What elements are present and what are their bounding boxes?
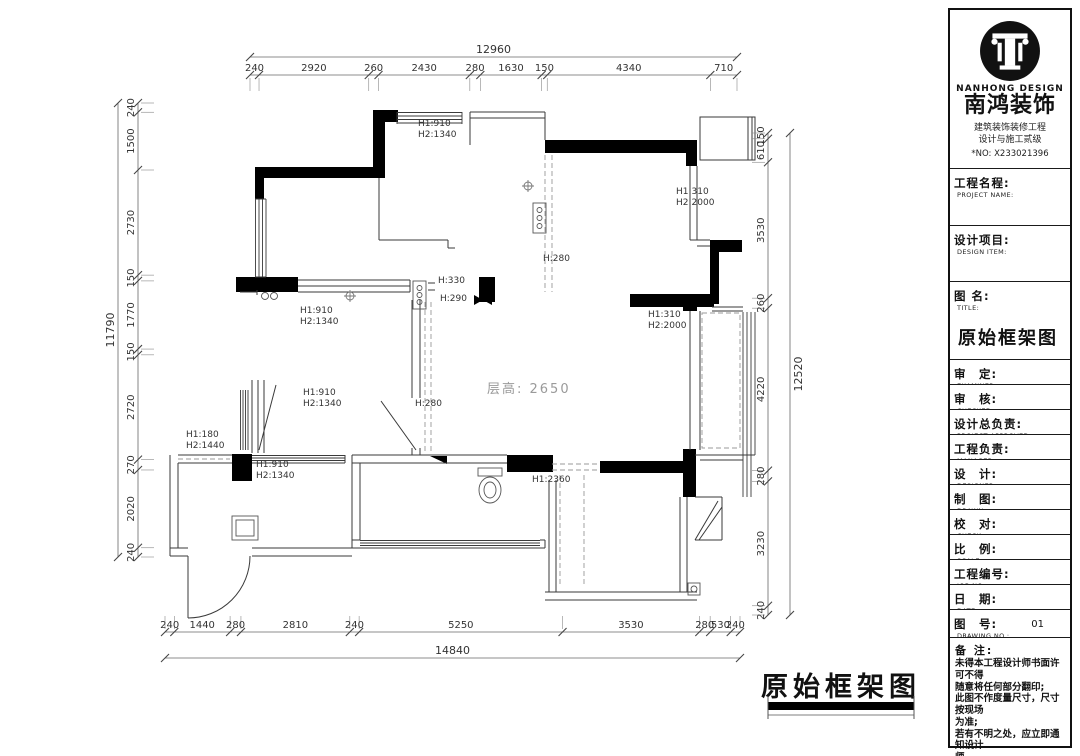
field-project-approved: 设计总负责:PROJECT APPROVED: xyxy=(950,409,1070,434)
dim-label: 2810 xyxy=(283,620,308,631)
field-checked: 审 核:CHECKED: xyxy=(950,384,1070,409)
dim-label: 270 xyxy=(126,455,137,474)
field-designer: 设 计:DESIGNER: xyxy=(950,459,1070,484)
dim-label: 2020 xyxy=(126,496,137,521)
survey-point-icon xyxy=(522,180,534,192)
dim-label: 260 xyxy=(364,63,383,74)
dim-label: 1630 xyxy=(498,63,523,74)
opening-height-label: H:280 xyxy=(415,399,442,409)
dim-label: 610 xyxy=(756,141,767,160)
toilet-icon xyxy=(478,468,502,503)
notes-line: 若有不明之处，应立即通知设计 xyxy=(955,729,1065,753)
floor-drain-icon xyxy=(688,583,700,595)
field-value: 原始框架图 xyxy=(958,324,1066,350)
opening-height-label: H:280 xyxy=(543,254,570,264)
title-block-fields: 工程名程:PROJECT NAME:设计项目:DESIGN ITEM:图 名:T… xyxy=(950,168,1070,637)
field-design-item: 设计项目:DESIGN ITEM: xyxy=(950,225,1070,281)
field-drawn: 制 图:DRAWN: xyxy=(950,484,1070,509)
dim-label: 710 xyxy=(714,63,733,74)
dim-label: 280 xyxy=(226,620,245,631)
title-underline-bar xyxy=(768,702,914,710)
electric-panel-icon xyxy=(413,281,426,309)
opening-height-label: H1:2360 xyxy=(532,475,571,485)
company-logo-section: NANHONG DESIGN 南鸿装饰 建筑装饰装修工程 设计与施工贰级 *NO… xyxy=(950,10,1070,168)
dim-total-label: 12960 xyxy=(476,43,511,56)
notes-line: 随意将任何部分翻印; xyxy=(955,682,1065,694)
dim-label: 260 xyxy=(756,294,767,313)
field-scale: 比 例:SCALE: xyxy=(950,534,1070,559)
company-logo-icon xyxy=(979,20,1041,82)
washing-machine-icon xyxy=(232,516,258,540)
dim-total-label: 12520 xyxy=(792,357,805,392)
field-manager: 工程负责:MANAGER: xyxy=(950,434,1070,459)
notes-label: 备 注: xyxy=(955,642,1065,658)
field-project-name: 工程名程:PROJECT NAME: xyxy=(950,168,1070,225)
dim-label: 5250 xyxy=(448,620,473,631)
doors xyxy=(188,401,416,618)
brand-name-cn: 南鸿装饰 xyxy=(950,94,1070,118)
floor-height-label: 层高: 2650 xyxy=(487,381,571,397)
dim-label: 240 xyxy=(126,543,137,562)
dim-label: 1500 xyxy=(126,128,137,153)
walls-solid xyxy=(232,110,742,497)
dim-label: 150 xyxy=(126,268,137,287)
dim-label: 1770 xyxy=(126,302,137,327)
opening-height-label: H1:310H2:2000 xyxy=(648,310,687,331)
dim-label: 2920 xyxy=(301,63,326,74)
field-check: 校 对:CHECK: xyxy=(950,509,1070,534)
dim-label: 240 xyxy=(756,601,767,620)
notes-lines: 未得本工程设计师书面许可不得随意将任何部分翻印;此图不作度量尺寸，尺寸按现场为准… xyxy=(955,658,1065,756)
opening-height-label: H:290 xyxy=(440,294,467,304)
dim-chain-right: 15061035302604220280323024012520 xyxy=(752,126,805,620)
opening-height-label: H1:180H2:1440 xyxy=(186,430,225,451)
dim-label: 2730 xyxy=(126,210,137,235)
dim-label: 1440 xyxy=(189,620,214,631)
notes-line: 为准; xyxy=(955,717,1065,729)
dim-label: 3230 xyxy=(756,531,767,556)
dim-chain-left: 2401500273015017701502720270202024011790 xyxy=(104,98,154,562)
dim-label: 240 xyxy=(245,63,264,74)
stove-burners-icon xyxy=(262,293,278,300)
notes-section: 备 注: 未得本工程设计师书面许可不得随意将任何部分翻印;此图不作度量尺寸，尺寸… xyxy=(950,637,1070,756)
dim-label: 150 xyxy=(126,342,137,361)
bedroom-door-leaf xyxy=(381,401,416,450)
notes-line: 未得本工程设计师书面许可不得 xyxy=(955,658,1065,682)
dim-label: 3530 xyxy=(618,620,643,631)
opening-height-label: H1:310H2:2000 xyxy=(676,187,715,208)
dim-label: 150 xyxy=(535,63,554,74)
dim-label: 2430 xyxy=(411,63,436,74)
certification-number: *NO: X233021396 xyxy=(950,149,1070,159)
dim-total-label: 11790 xyxy=(104,313,117,348)
entry-door-swing xyxy=(188,556,250,618)
drawing-title-group: 原始框架图 xyxy=(761,671,921,719)
dim-label: 4220 xyxy=(756,377,767,402)
dim-label: 2720 xyxy=(126,394,137,419)
opening-height-label: H1:910H2:1340 xyxy=(418,119,457,140)
field-title: 图 名:TITLE:原始框架图 xyxy=(950,281,1070,359)
field-job-no: 工程编号:JOB NO.: xyxy=(950,559,1070,584)
field-value: 01 xyxy=(1031,619,1044,630)
drawing-title: 原始框架图 xyxy=(761,671,921,703)
dim-label: 280 xyxy=(466,63,485,74)
electric-panel-icon xyxy=(533,203,546,233)
title-block: NANHONG DESIGN 南鸿装饰 建筑装饰装修工程 设计与施工贰级 *NO… xyxy=(948,8,1072,748)
certification-text: 建筑装饰装修工程 设计与施工贰级 xyxy=(950,122,1070,146)
dim-label: 240 xyxy=(126,98,137,117)
dim-chain-bottom: 240144028028102405250353028053024014840 xyxy=(160,616,745,662)
dim-label: 240 xyxy=(345,620,364,631)
dim-chain-top: 240292026024302801630150434071012960 xyxy=(245,43,741,91)
notes-line: 此图不作度量尺寸，尺寸按现场 xyxy=(955,693,1065,717)
field-date: 日 期:DATE: xyxy=(950,584,1070,609)
drawing-sheet: 2402920260243028016301504340710129602401… xyxy=(0,0,1080,756)
opening-height-label: H1:910H2:1340 xyxy=(300,306,339,327)
field-drawing-no: 图 号:DRAWING NO.:01 xyxy=(950,609,1070,637)
opening-height-label: H:330 xyxy=(438,276,465,286)
opening-height-label: H1:910H2:1340 xyxy=(303,388,342,409)
dim-total-label: 14840 xyxy=(435,644,470,657)
dim-label: 240 xyxy=(160,620,179,631)
dim-label: 280 xyxy=(756,466,767,485)
floor-plan-drawing: 2402920260243028016301504340710129602401… xyxy=(0,0,940,756)
dim-label: 240 xyxy=(726,620,745,631)
dim-label: 4340 xyxy=(616,63,641,74)
notes-line: 师。 xyxy=(955,752,1065,756)
dim-label: 3530 xyxy=(756,217,767,242)
field-examiner: 审 定:EXAMINER: xyxy=(950,359,1070,384)
